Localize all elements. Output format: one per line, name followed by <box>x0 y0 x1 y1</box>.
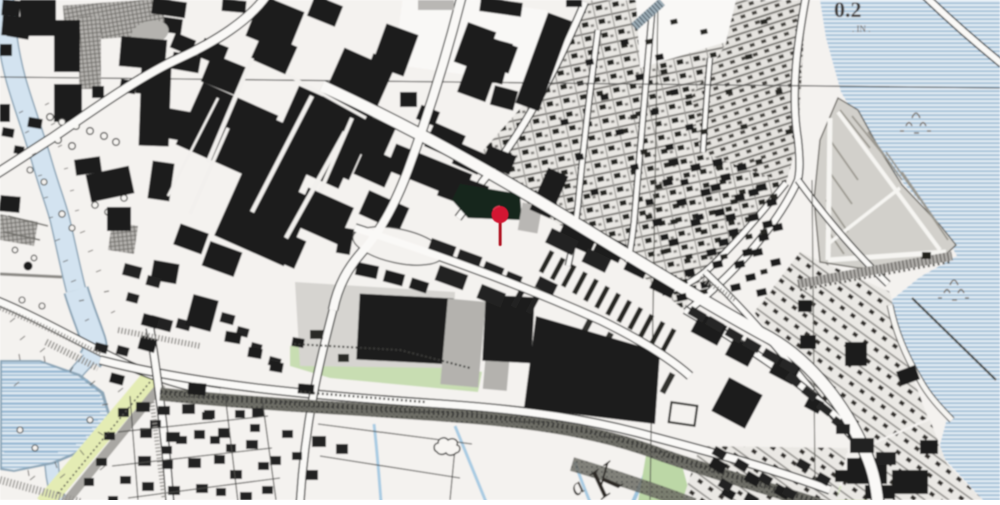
svg-text:0.2: 0.2 <box>834 0 862 22</box>
svg-text:. IN .: . IN . <box>852 24 871 34</box>
